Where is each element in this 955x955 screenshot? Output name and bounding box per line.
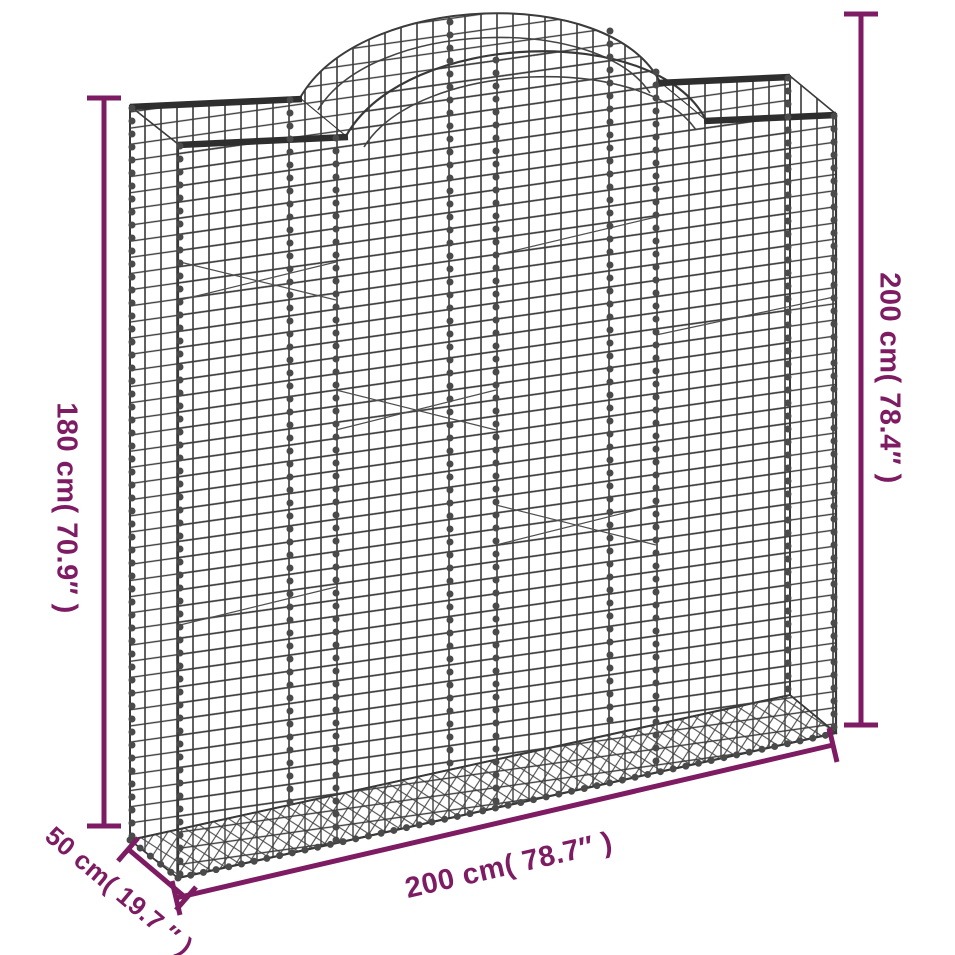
- product-dimension-diagram: 180 cm( 70.9″ ) 200 cm( 78.4″ ) 200 cm( …: [0, 0, 955, 955]
- dimension-label-height-left: 180 cm( 70.9″ ): [50, 402, 83, 614]
- gabion-basket-illustration: [130, 13, 836, 878]
- gabion-diagram-canvas: [0, 0, 955, 955]
- dimension-label-height-right: 200 cm( 78.4″ ): [873, 272, 906, 484]
- basket-left-side-panel: [130, 106, 178, 878]
- dimension-line-height-left: [87, 98, 121, 826]
